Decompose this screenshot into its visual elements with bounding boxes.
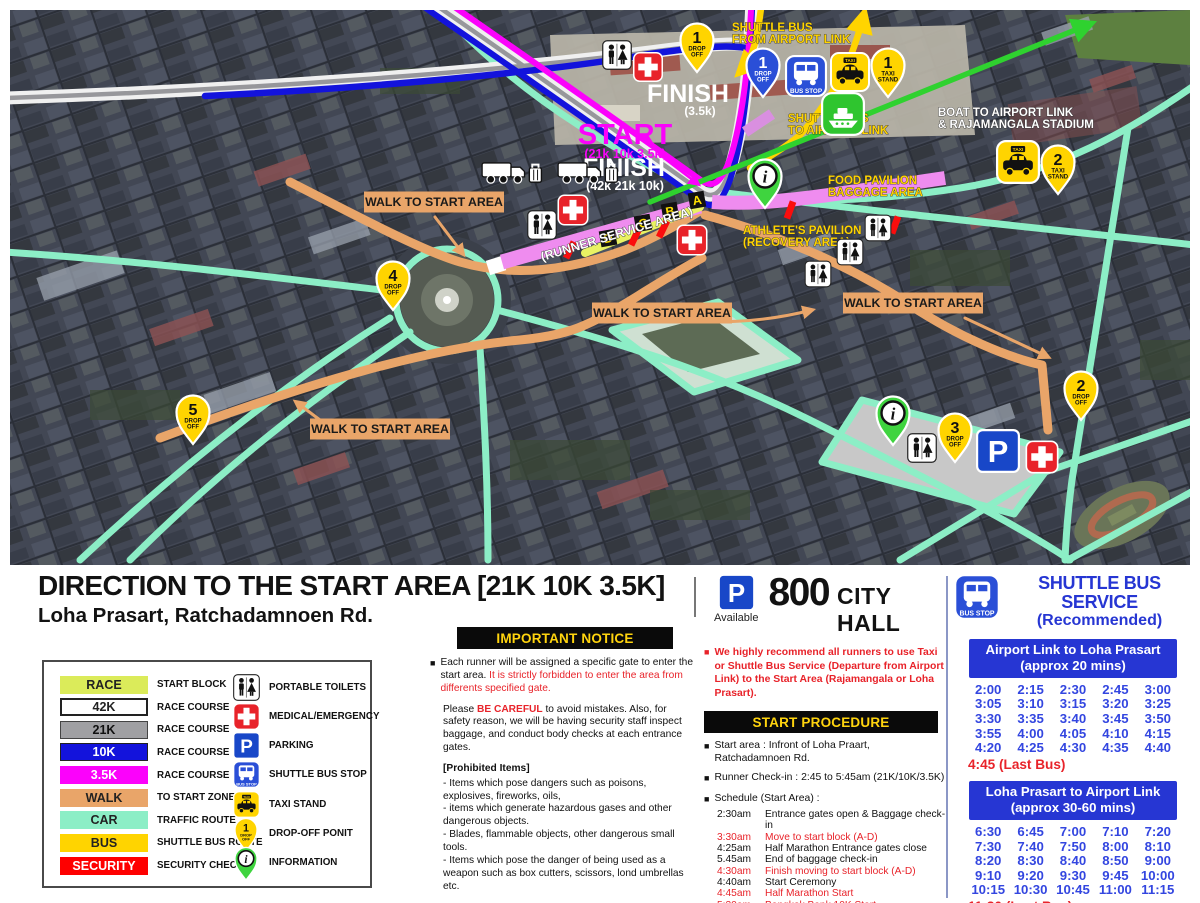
finish-3-5k-sub: (3.5k) — [684, 104, 715, 118]
bus-time: 3:40 — [1052, 712, 1094, 727]
portable-toilets-icon — [603, 41, 632, 70]
start-procedure-bullet: ■Schedule (Start Area) : — [704, 793, 946, 807]
legend-icon-label: SHUTTLE BUS STOP — [269, 769, 367, 780]
bus-timetable-header: Airport Link to Loha Prasart(approx 20 m… — [969, 639, 1177, 678]
legend-route-label: RACE COURSE — [157, 747, 229, 758]
parking-icon — [718, 574, 755, 611]
notice-paragraph-2: Please BE CAREFUL to avoid mistakes. Als… — [443, 704, 693, 755]
notice-paragraph-1: ■ Each runner will be assigned a specifi… — [430, 657, 700, 696]
bus-time: 3:15 — [1052, 697, 1094, 712]
legend-swatch: SECURITY — [60, 857, 148, 875]
bus-time: 4:25 — [1009, 741, 1051, 756]
bus-time: 7:50 — [1052, 840, 1094, 855]
bus-time: 8:00 — [1094, 840, 1136, 855]
important-notice-section: IMPORTANT NOTICE ■ Each runner will be a… — [430, 627, 700, 903]
bus-time: 4:20 — [967, 741, 1009, 756]
bus-time: 3:45 — [1094, 712, 1136, 727]
page-title: DIRECTION TO THE START AREA [21K 10K 3.5… — [38, 570, 665, 602]
bus-time: 3:00 — [1137, 683, 1179, 698]
svg-text:2: 2 — [1077, 378, 1086, 395]
map-legend: RACESTART BLOCK42KRACE COURSE21KRACE COU… — [42, 660, 372, 888]
bus-time: 11:15 — [1137, 883, 1179, 898]
bus-time-grid: 6:306:457:007:107:207:307:407:508:008:10… — [967, 825, 1179, 898]
schedule-row: 4:40amStart Ceremony — [717, 877, 946, 888]
prohibited-item: - Items which pose the danger of being u… — [443, 855, 693, 894]
bus-time: 2:30 — [1052, 683, 1094, 698]
legend-row-bus: BUSSHUTTLE BUS ROUTE — [60, 833, 228, 852]
svg-text:WALK TO START AREA: WALK TO START AREA — [844, 296, 982, 310]
bus-time: 4:40 — [1137, 741, 1179, 756]
start-procedure-bullet: ■Runner Check-in : 2:45 to 5:45am (21K/1… — [704, 772, 946, 786]
square-bullet-icon: ■ — [430, 657, 435, 696]
page-subtitle: Loha Prasart, Ratchadamnoen Rd. — [38, 604, 373, 628]
svg-text:STAND: STAND — [1048, 175, 1069, 181]
legend-row-car: CARTRAFFIC ROUTE — [60, 811, 228, 830]
bus-time: 8:30 — [1009, 854, 1051, 869]
bus-timetable-1: Airport Link to Loha Prasart(approx 20 m… — [954, 639, 1192, 772]
square-bullet-icon: ■ — [704, 646, 709, 700]
medical-emergency-icon — [677, 225, 706, 254]
svg-text:1: 1 — [884, 55, 893, 72]
medical-emergency-icon — [1026, 441, 1057, 472]
last-bus-time: 11:30 (Last Bus) — [968, 899, 1192, 903]
bus-time: 2:00 — [967, 683, 1009, 698]
legend-icon-list: PORTABLE TOILETSMEDICAL/EMERGENCYPARKING… — [228, 675, 380, 875]
important-notice-header: IMPORTANT NOTICE — [457, 627, 673, 649]
prohibited-item: - items which generate hazardous gases a… — [443, 803, 693, 829]
portable-toilets-icon — [805, 261, 831, 287]
bus-time: 3:30 — [967, 712, 1009, 727]
legend-swatch: 21K — [60, 721, 148, 739]
medical-emergency-icon — [634, 53, 663, 82]
svg-text:OFF: OFF — [242, 836, 251, 841]
legend-icon-label: INFORMATION — [269, 857, 337, 868]
legend-row-42k: 42KRACE COURSE — [60, 698, 228, 717]
legend-icon-row-droppin: 1DROPOFFDROP-OFF PONIT — [230, 821, 380, 846]
bus-time: 10:15 — [967, 883, 1009, 898]
bus-time: 8:50 — [1094, 854, 1136, 869]
legend-row-walk: WALKTO START ZONE — [60, 788, 228, 807]
bus-time: 2:45 — [1094, 683, 1136, 698]
bus-time: 4:35 — [1094, 741, 1136, 756]
legend-swatch: 3.5K — [60, 766, 148, 784]
legend-icon-label: PARKING — [269, 740, 313, 751]
svg-text:4: 4 — [389, 268, 398, 285]
walk-to-start-area-label: WALK TO START AREA — [592, 303, 732, 324]
bus-time: 7:00 — [1052, 825, 1094, 840]
svg-text:OFF: OFF — [187, 425, 199, 431]
prohibited-items-title: [Prohibited Items] — [443, 763, 693, 776]
taxi-stand-icon — [831, 53, 869, 91]
bus-time: 10:45 — [1052, 883, 1094, 898]
medical-emergency-icon — [558, 195, 587, 224]
bus-time: 8:40 — [1052, 854, 1094, 869]
medical-icon — [233, 703, 260, 730]
walk-to-start-area-label: WALK TO START AREA — [310, 419, 450, 440]
bus-time: 9:30 — [1052, 869, 1094, 884]
prohibited-item: - Items which pose dangers such as poiso… — [443, 778, 693, 804]
legend-swatch: RACE — [60, 676, 148, 694]
svg-text:3: 3 — [951, 420, 960, 437]
legend-icon-label: DROP-OFF PONIT — [269, 828, 353, 839]
legend-route-list: RACESTART BLOCK42KRACE COURSE21KRACE COU… — [60, 675, 228, 875]
legend-icon-row-parking: PARKING — [230, 733, 380, 758]
bus-time: 7:20 — [1137, 825, 1179, 840]
schedule-row: 4:30amFinish moving to start block (A-D) — [717, 866, 946, 877]
toilet-icon — [233, 674, 260, 701]
bus-stop-icon — [954, 574, 1000, 620]
svg-text:OFF: OFF — [691, 53, 703, 59]
svg-text:1: 1 — [693, 30, 702, 47]
svg-text:WALK TO START AREA: WALK TO START AREA — [365, 195, 503, 209]
parking-icon — [977, 430, 1019, 472]
bus-time: 6:30 — [967, 825, 1009, 840]
bus-time: 9:20 — [1009, 869, 1051, 884]
legend-route-label: RACE COURSE — [157, 702, 229, 713]
svg-text:WALK TO START AREA: WALK TO START AREA — [593, 306, 731, 320]
bus-time-grid: 2:002:152:302:453:003:053:103:153:203:25… — [967, 683, 1179, 756]
legend-row-21k: 21KRACE COURSE — [60, 720, 228, 739]
bus-time: 8:20 — [967, 854, 1009, 869]
legend-route-label: TO START ZONE — [157, 792, 235, 803]
divider-shuttle-column — [946, 576, 948, 898]
portable-toilets-icon — [865, 215, 891, 241]
information-pin: i — [235, 847, 257, 879]
parking-location-label: CITY HALL — [837, 583, 946, 637]
bus-time: 9:10 — [967, 869, 1009, 884]
bus-time: 3:50 — [1137, 712, 1179, 727]
event-map-poster: P BUS STOP TAXI — [0, 0, 1200, 903]
taxi-icon — [233, 791, 260, 818]
legend-row-security: SECURITYSECURITY CHECK — [60, 856, 228, 875]
bus-time: 6:45 — [1009, 825, 1051, 840]
bus-time: 8:10 — [1137, 840, 1179, 855]
svg-text:OFF: OFF — [387, 291, 399, 297]
legend-swatch: 42K — [60, 698, 148, 716]
start-schedule-list: 2:30amEntrance gates open & Baggage chec… — [717, 809, 946, 903]
legend-swatch: 10K — [60, 743, 148, 761]
schedule-row: 4:25amHalf Marathon Entrance gates close — [717, 843, 946, 854]
prohibited-item: - Blades, flammable objects, other dange… — [443, 829, 693, 855]
bus-time: 4:15 — [1137, 727, 1179, 742]
bus-time: 3:25 — [1137, 697, 1179, 712]
walk-to-start-area-label: WALK TO START AREA — [843, 293, 983, 314]
legend-icon-row-infopin: iINFORMATION — [230, 850, 380, 875]
portable-toilets-icon — [528, 211, 557, 240]
boat-icon — [822, 93, 864, 135]
legend-swatch: WALK — [60, 789, 148, 807]
legend-swatch: CAR — [60, 811, 148, 829]
bus-time: 10:30 — [1009, 883, 1051, 898]
legend-route-label: RACE COURSE — [157, 770, 229, 781]
shuttle-header: SHUTTLE BUS SERVICE (Recommended) — [954, 574, 1192, 630]
schedule-row: 4:45amHalf Marathon Start — [717, 888, 946, 899]
shuttle-title: SHUTTLE BUS SERVICE — [1007, 574, 1192, 613]
bus-timetable-2: Loha Prasart to Airport Link(approx 30-6… — [954, 781, 1192, 903]
shuttle-subtitle: (Recommended) — [1007, 613, 1192, 630]
parking-and-procedure-section: Available 800 CITY HALL ■ We highly reco… — [704, 574, 946, 903]
bus-time: 10:00 — [1137, 869, 1179, 884]
legend-icon-row-medical: MEDICAL/EMERGENCY — [230, 704, 380, 729]
bus-time: 7:30 — [967, 840, 1009, 855]
shuttle-bus-section: SHUTTLE BUS SERVICE (Recommended) Airpor… — [954, 574, 1192, 903]
legend-row-3-5k: 3.5KRACE COURSE — [60, 766, 228, 785]
bus-time: 4:05 — [1052, 727, 1094, 742]
legend-row-10k: 10KRACE COURSE — [60, 743, 228, 762]
satellite-map: P BUS STOP TAXI — [10, 10, 1190, 565]
walk-to-start-area-label: WALK TO START AREA — [364, 192, 504, 213]
schedule-row: 3:30amMove to start block (A-D) — [717, 832, 946, 843]
bus-time: 4:00 — [1009, 727, 1051, 742]
boat-route-label: BOAT TO AIRPORT LINK& RAJAMANGALA STADIU… — [938, 107, 1094, 131]
information-pin-icon: i — [233, 846, 259, 879]
bus-timetables: Airport Link to Loha Prasart(approx 20 m… — [954, 639, 1192, 903]
portable-toilets-icon — [837, 239, 863, 265]
last-bus-time: 4:45 (Last Bus) — [968, 757, 1192, 772]
bus-time: 3:35 — [1009, 712, 1051, 727]
legend-route-label: START BLOCK — [157, 679, 226, 690]
legend-icon-row-taxi: TAXI STAND — [230, 792, 380, 817]
bus-timetable-header: Loha Prasart to Airport Link(approx 30-6… — [969, 781, 1177, 820]
svg-text:1: 1 — [759, 55, 768, 72]
parking-icon — [233, 732, 260, 759]
start-procedure-bullets: ■Start area : Infront of Loha Praart, Ra… — [704, 740, 946, 806]
legend-route-label: TRAFFIC ROUTE — [157, 815, 236, 826]
svg-text:5: 5 — [189, 402, 198, 419]
food-pavilion-label: FOOD PAVILIONBAGGAGE AREA — [828, 175, 923, 199]
legend-icon-label: MEDICAL/EMERGENCY — [269, 711, 380, 722]
parking-header: Available 800 CITY HALL — [704, 574, 946, 637]
legend-swatch: BUS — [60, 834, 148, 852]
drop-off-pin-icon: 1DROPOFF — [233, 817, 259, 850]
svg-text:2: 2 — [1054, 152, 1063, 169]
bus-time: 9:00 — [1137, 854, 1179, 869]
start-procedure-bullet: ■Start area : Infront of Loha Praart, Ra… — [704, 740, 946, 765]
bus-time: 11:00 — [1094, 883, 1136, 898]
svg-text:OFF: OFF — [949, 443, 961, 449]
bus-time: 9:45 — [1094, 869, 1136, 884]
bus-time: 3:20 — [1094, 697, 1136, 712]
legend-icon-label: TAXI STAND — [269, 799, 326, 810]
legend-icon-row-busstop: SHUTTLE BUS STOP — [230, 762, 380, 787]
bus-time: 4:10 — [1094, 727, 1136, 742]
svg-text:STAND: STAND — [878, 78, 899, 84]
taxi-stand-icon — [997, 141, 1039, 183]
bus-time: 3:05 — [967, 697, 1009, 712]
legend-icon-row-toilet: PORTABLE TOILETS — [230, 675, 380, 700]
shuttle-recommendation-note: ■ We highly recommend all runners to use… — [704, 646, 946, 700]
svg-text:OFF: OFF — [757, 78, 769, 84]
bus-time: 7:10 — [1094, 825, 1136, 840]
start-procedure-header: START PROCEDURE — [704, 711, 938, 733]
legend-row-race: RACESTART BLOCK — [60, 675, 228, 694]
bus-time: 3:10 — [1009, 697, 1051, 712]
parking-available-label: Available — [714, 612, 758, 624]
busstop-icon — [233, 761, 260, 788]
legend-route-label: RACE COURSE — [157, 724, 229, 735]
schedule-row: 5.45amEnd of baggage check-in — [717, 854, 946, 865]
svg-text:i: i — [891, 405, 896, 424]
bus-time: 4:30 — [1052, 741, 1094, 756]
bus-stop-icon — [786, 56, 826, 96]
svg-text:OFF: OFF — [1075, 401, 1087, 407]
svg-text:WALK TO START AREA: WALK TO START AREA — [311, 422, 449, 436]
bus-time: 3:55 — [967, 727, 1009, 742]
legend-icon-label: PORTABLE TOILETS — [269, 682, 366, 693]
prohibited-items-list: - Items which pose dangers such as poiso… — [443, 778, 693, 894]
portable-toilets-icon — [908, 434, 937, 463]
bus-time: 2:15 — [1009, 683, 1051, 698]
divider-parking-left — [694, 577, 696, 617]
bus-time: 7:40 — [1009, 840, 1051, 855]
svg-text:i: i — [763, 168, 768, 187]
schedule-row: 2:30amEntrance gates open & Baggage chec… — [717, 809, 946, 832]
parking-count: 800 — [768, 574, 829, 612]
